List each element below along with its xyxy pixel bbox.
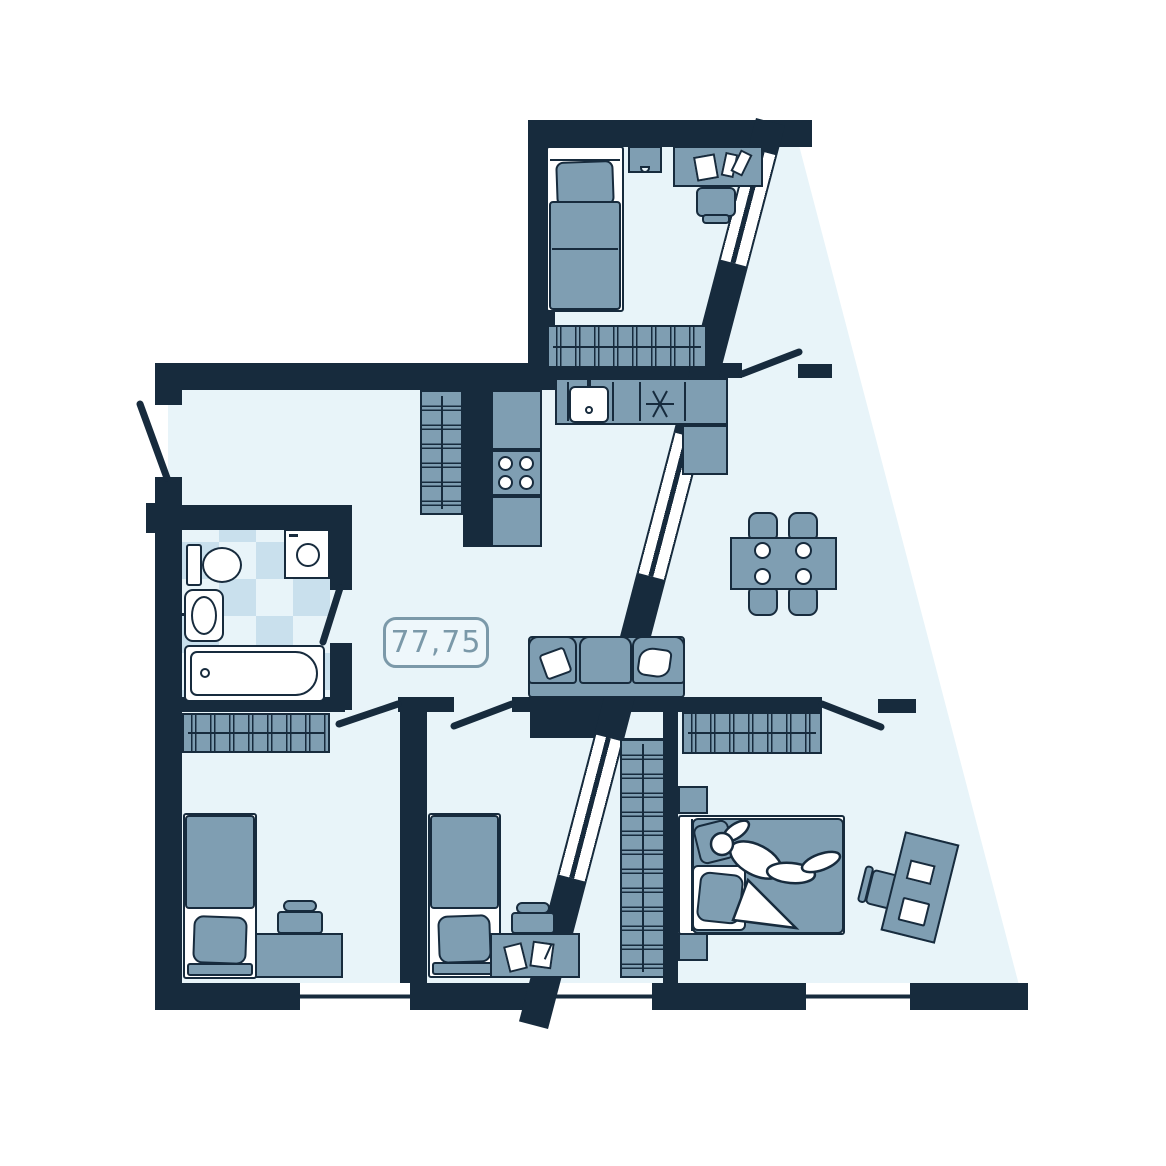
area-value: 77,75 [391,625,482,660]
bedroom2-door-leaf [454,704,512,726]
floor-plan: 77,75 [0,0,1166,1166]
master-door-leaf [822,704,881,727]
top-bedroom-door-leaf [742,352,799,374]
bedroom1-door-leaf [339,704,398,724]
bathroom-door-leaf [323,588,340,642]
area-label: 77,75 [383,617,489,668]
door-leaves [0,0,1166,1166]
entrance-door-leaf [140,404,167,478]
